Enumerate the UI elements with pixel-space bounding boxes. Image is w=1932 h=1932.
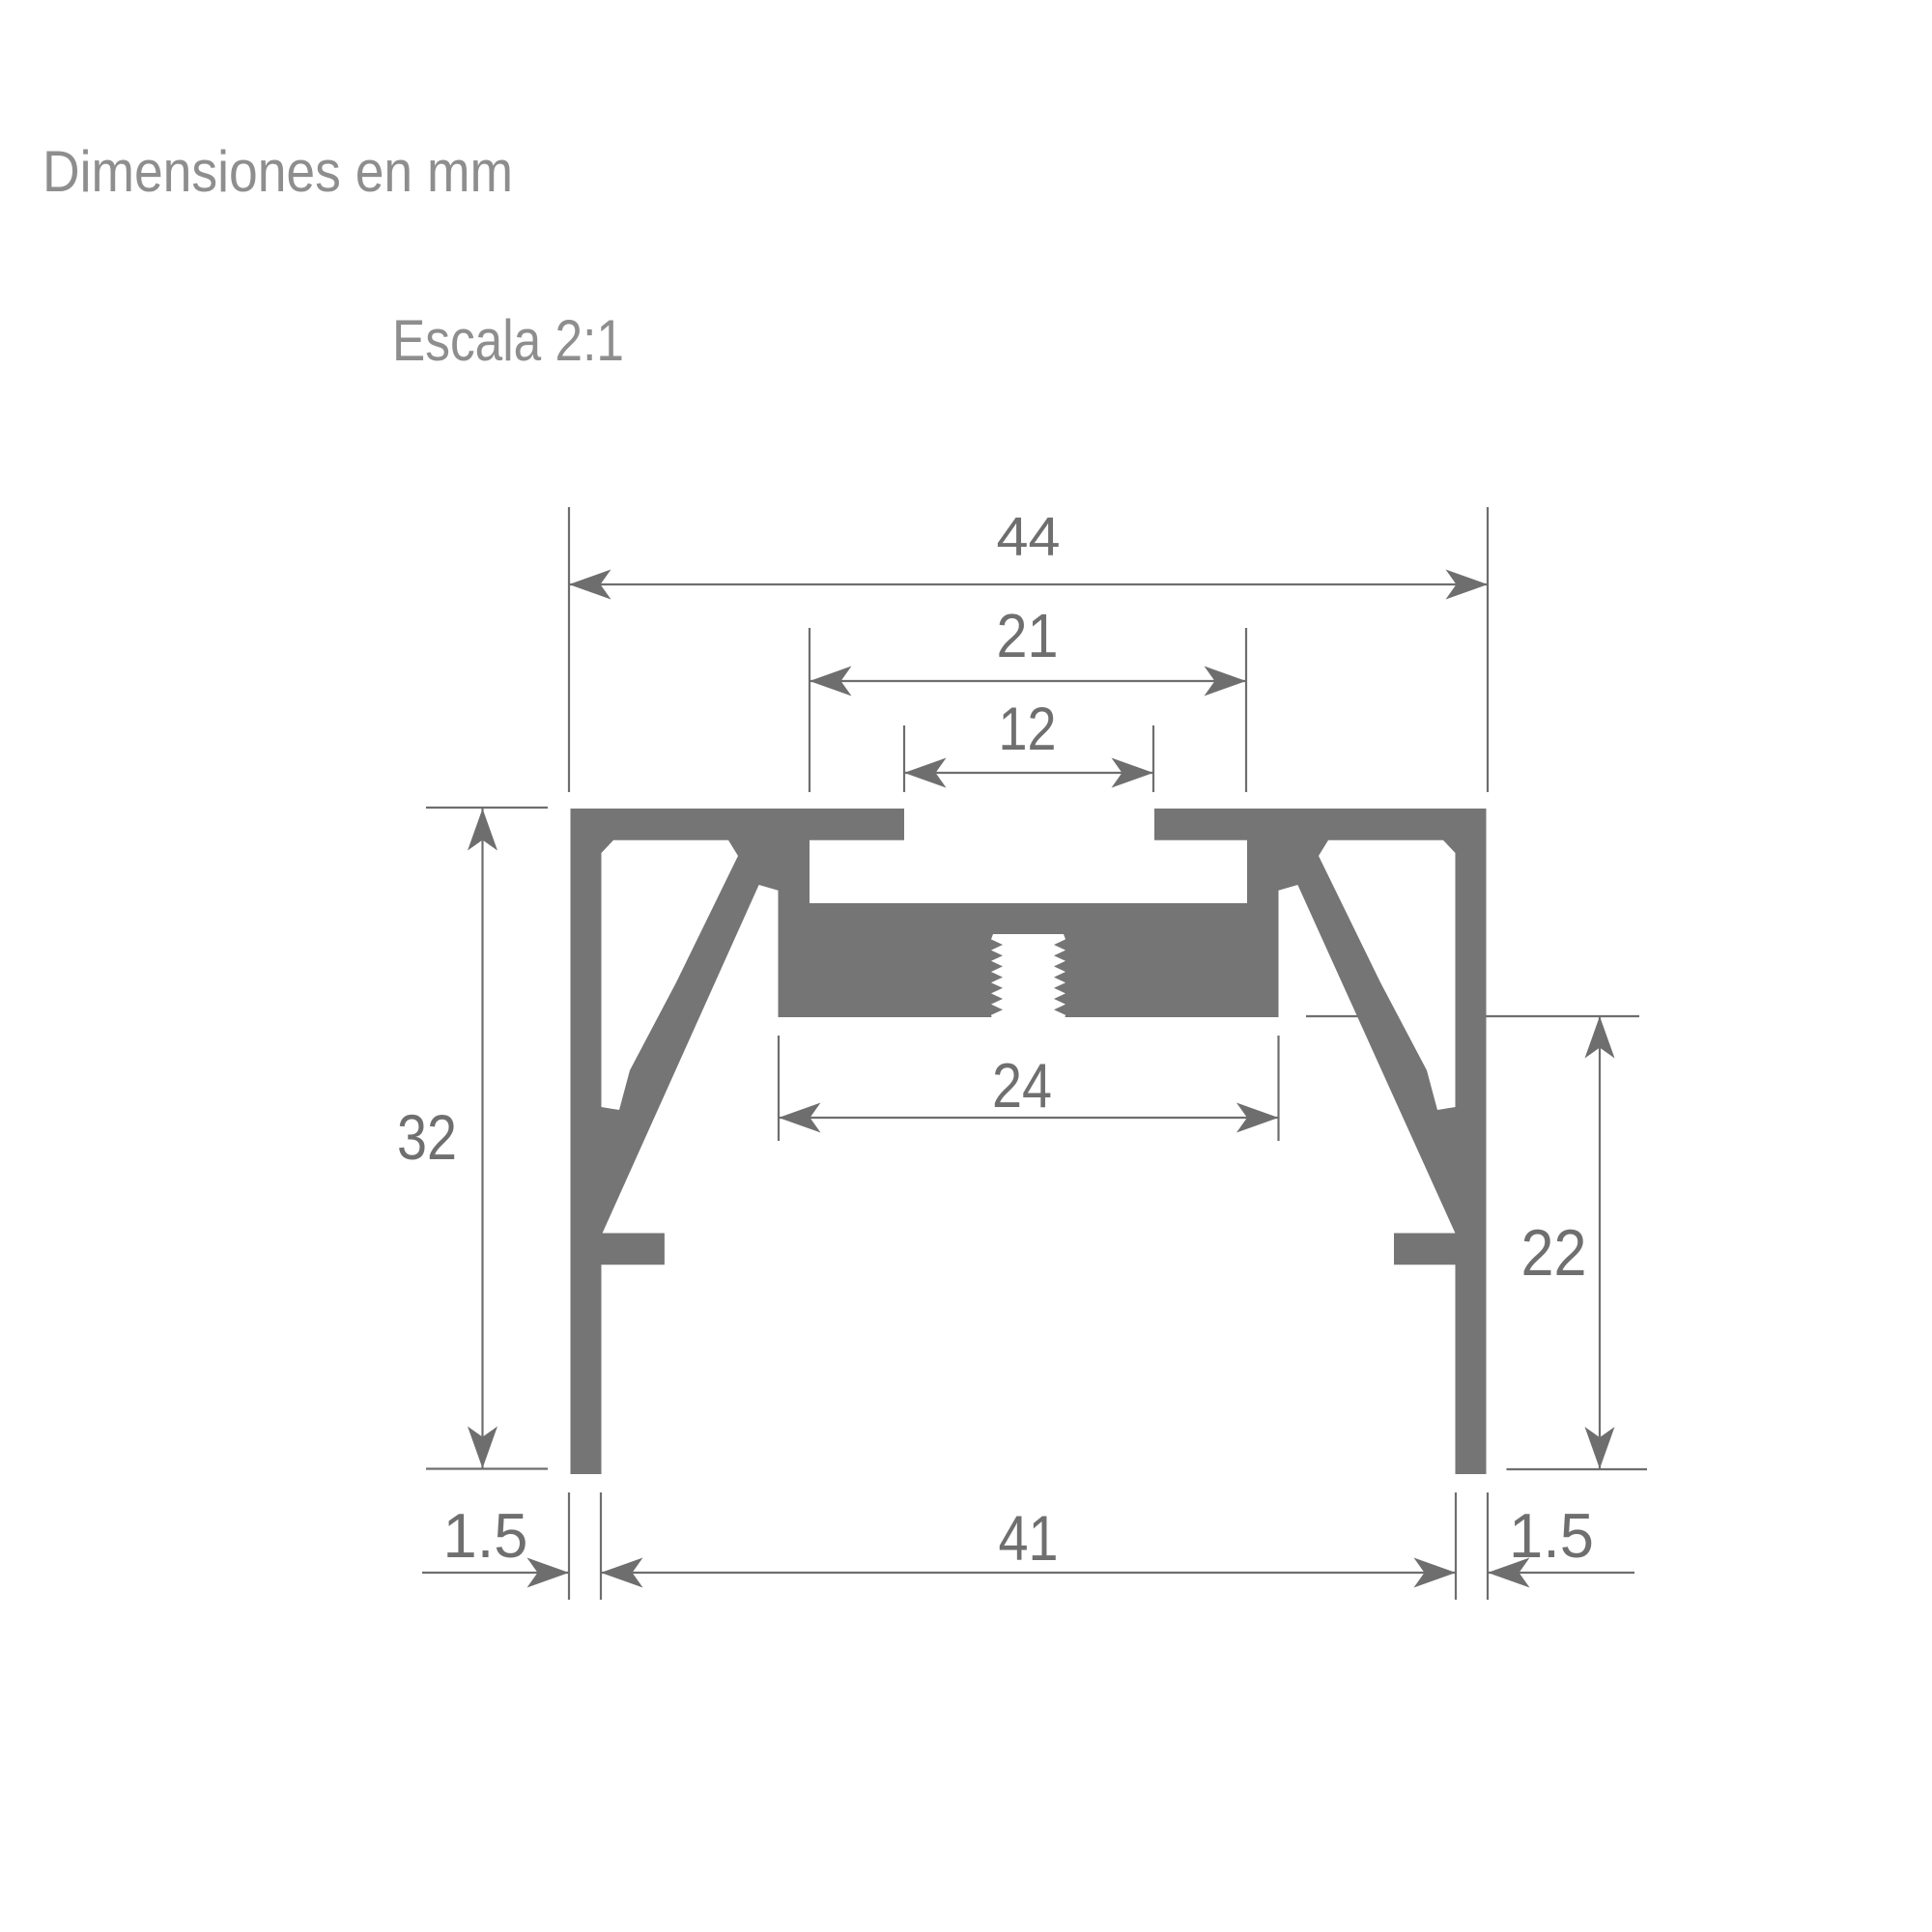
svg-text:41: 41: [999, 1502, 1059, 1574]
svg-text:1.5: 1.5: [443, 1500, 528, 1571]
svg-text:44: 44: [997, 506, 1061, 568]
svg-text:24: 24: [992, 1050, 1052, 1121]
svg-text:32: 32: [397, 1101, 457, 1173]
svg-text:1.5: 1.5: [1509, 1500, 1594, 1571]
svg-text:22: 22: [1521, 1216, 1587, 1290]
svg-text:Escala 2:1: Escala 2:1: [392, 308, 624, 373]
svg-text:Dimensiones en mm: Dimensiones en mm: [43, 139, 513, 204]
svg-text:12: 12: [999, 696, 1057, 763]
svg-text:21: 21: [997, 601, 1059, 670]
